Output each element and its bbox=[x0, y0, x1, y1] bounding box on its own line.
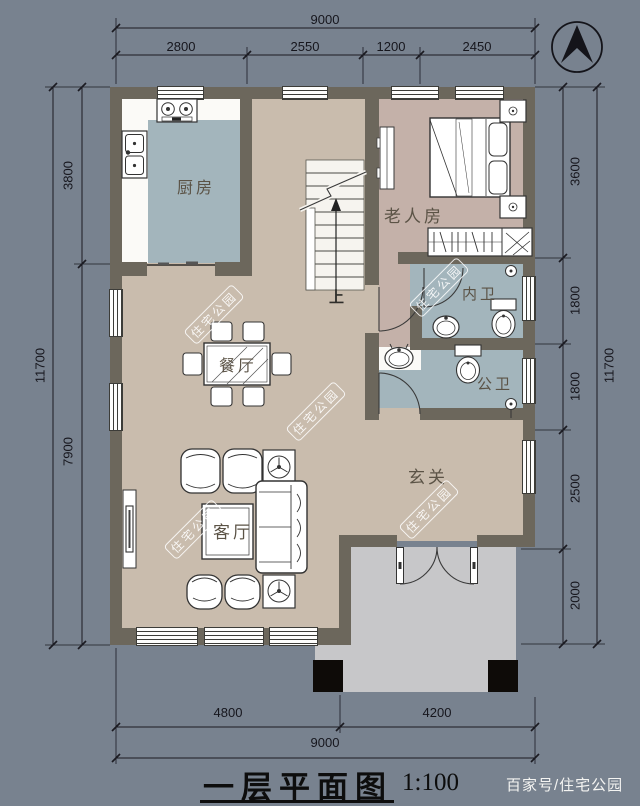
window-elder-top-a bbox=[392, 87, 438, 99]
wall-stair-divider-upper bbox=[365, 87, 379, 285]
room-label-living: 客厅 bbox=[213, 518, 253, 543]
dim-bottom-total: 9000 bbox=[297, 735, 353, 750]
porch-column-right bbox=[488, 660, 518, 692]
window-elder-top-b bbox=[456, 87, 503, 99]
wall-kitchen-bottom-a bbox=[110, 262, 147, 276]
window-dining-left-a bbox=[110, 290, 122, 336]
window-living-bottom-a bbox=[137, 628, 197, 645]
dim-bottom-seg-1: 4200 bbox=[409, 705, 465, 720]
title-underline bbox=[200, 800, 394, 803]
window-living-bottom-b bbox=[205, 628, 263, 645]
dim-left-total: 11700 bbox=[33, 338, 48, 394]
stairs-up-label: 上 bbox=[329, 286, 344, 307]
wall-kitchen-right bbox=[240, 87, 252, 270]
dim-bottom-seg-0: 4800 bbox=[200, 705, 256, 720]
room-label-dining: 餐厅 bbox=[219, 352, 257, 376]
dim-left-seg-1: 7900 bbox=[61, 424, 76, 480]
dim-left-seg-0: 3800 bbox=[61, 148, 76, 204]
source-credit: 百家号/住宅公园 bbox=[506, 774, 623, 795]
window-stair-top bbox=[283, 87, 327, 99]
dim-right-total: 11700 bbox=[602, 338, 617, 394]
room-label-elder-bedroom: 老人房 bbox=[384, 202, 444, 227]
room-label-kitchen: 厨房 bbox=[177, 174, 215, 198]
dim-top-total: 9000 bbox=[297, 12, 353, 27]
wall-bath-divider bbox=[410, 338, 523, 350]
dim-right-seg-4: 2000 bbox=[568, 568, 583, 624]
window-entry-right bbox=[523, 441, 535, 493]
porch-column-left bbox=[313, 660, 343, 692]
window-living-bottom-c bbox=[270, 628, 317, 645]
window-inner-bath-right bbox=[523, 277, 535, 320]
north-arrow-icon bbox=[552, 22, 602, 72]
entry-door-leaf-right bbox=[470, 547, 478, 584]
dim-top-seg-3: 2450 bbox=[449, 39, 505, 54]
entry-door-leaf-left bbox=[396, 547, 404, 584]
wall-left bbox=[110, 87, 122, 645]
wall-public-bath-bottom-a bbox=[365, 408, 379, 420]
wall-kitchen-bottom-b bbox=[215, 262, 252, 276]
dim-right-seg-1: 1800 bbox=[568, 273, 583, 329]
wall-porch-left bbox=[339, 535, 351, 645]
wall-entry-front-right bbox=[477, 535, 535, 547]
floor-elder-bedroom bbox=[379, 99, 523, 252]
wall-public-bath-bottom-b bbox=[420, 408, 535, 420]
wall-stair-divider-lower bbox=[365, 333, 379, 420]
dim-top-seg-0: 2800 bbox=[153, 39, 209, 54]
dim-top-seg-1: 2550 bbox=[277, 39, 333, 54]
kitchen-door-threshold bbox=[147, 264, 215, 266]
dim-right-seg-2: 1800 bbox=[568, 359, 583, 415]
wall-elder-bottom bbox=[398, 252, 535, 264]
room-label-public-bath: 公卫 bbox=[477, 373, 513, 394]
dim-right-seg-3: 2500 bbox=[568, 461, 583, 517]
floor-plan-canvas: 厨房 老人房 内卫 公卫 餐厅 客厅 玄关 上 9000 2800 2550 1… bbox=[0, 0, 640, 806]
room-label-inner-bath: 内卫 bbox=[462, 283, 498, 304]
window-kitchen-top bbox=[158, 87, 203, 99]
window-dining-left-b bbox=[110, 384, 122, 430]
window-public-bath-right bbox=[523, 359, 535, 403]
wash-counter bbox=[379, 347, 421, 370]
dim-top-seg-2: 1200 bbox=[363, 39, 419, 54]
dim-right-seg-0: 3600 bbox=[568, 144, 583, 200]
plan-scale: 1:100 bbox=[402, 769, 459, 797]
